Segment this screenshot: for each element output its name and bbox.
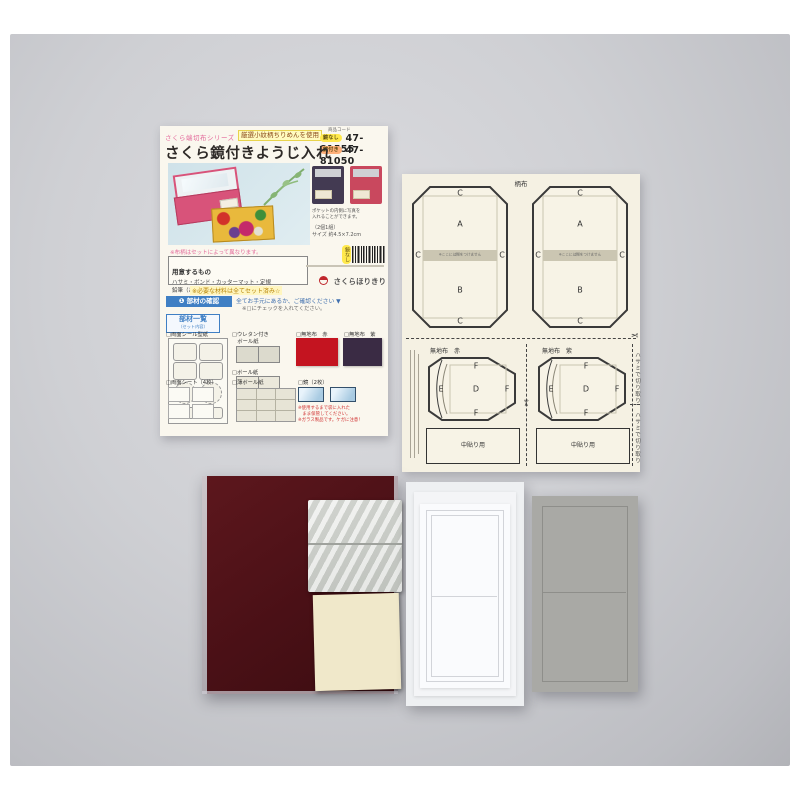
leaf-sprig	[260, 165, 308, 207]
tools-line: ハサミ・ボンド・カッターマット・定規	[172, 278, 304, 286]
product-title: さくら鏡付きようじ入れ	[165, 142, 331, 163]
subtitle-highlight: 厳選小紋柄ちりめんを使用	[238, 130, 322, 141]
cut-instruction-vertical: ハサミで切り取り	[633, 412, 641, 464]
part-label-double-sided-sheets: □両面シート（4枚）	[166, 378, 217, 386]
letter-c-top: C	[457, 189, 463, 198]
letter-c-left: C	[535, 251, 541, 260]
case-clasp	[353, 169, 379, 177]
sheet-diagram	[168, 387, 190, 402]
product-photo	[168, 163, 310, 245]
mirror-warning: ※使用するまで袋に入れた	[298, 406, 350, 412]
pattern-sheet: 柄布 C A C ※ここには糊をつけません C B C C A C	[402, 174, 640, 472]
part-label-cardboard: □ボール紙	[232, 368, 258, 376]
octagon-template-abc: C A C ※ここには糊をつけません C B C	[410, 184, 510, 330]
part-label-red-fabric: □無地布 赤	[296, 330, 328, 338]
part-label-purple-fabric: □無地布 紫	[344, 330, 376, 338]
purple-fabric-swatch	[343, 338, 382, 366]
die-cut-white-board	[420, 504, 510, 688]
case-clasp	[315, 169, 341, 177]
letter-f-bottom: F	[584, 409, 589, 418]
thin-board-diagram	[236, 388, 296, 422]
mirror-diagram	[298, 387, 324, 402]
brand-logo-icon	[319, 276, 328, 285]
middle-paste-rect: 中貼り用	[536, 428, 630, 464]
series-name: さくら端切布シリーズ	[165, 132, 235, 142]
wrapped-mirrors	[308, 500, 402, 592]
middle-paste-label: 中貼り用	[571, 442, 595, 449]
part-label-thin-board: □薄ボール紙	[232, 378, 264, 386]
fine-print-column	[410, 350, 411, 458]
die-shape	[199, 343, 223, 361]
sheet-diagram	[192, 387, 214, 402]
variant-case-red	[350, 166, 382, 204]
set-count-note: （2個1組）	[312, 224, 338, 231]
score-rect	[542, 506, 628, 682]
octagon-template-def: F E D F F	[426, 356, 518, 422]
set-complete-note: ※必要な材料は全てセット済み☆	[190, 286, 282, 295]
sheet-diagram	[192, 404, 214, 419]
mirror-none-badge: 鏡なし	[320, 134, 342, 142]
score-line	[542, 592, 626, 593]
fine-print-column	[414, 350, 415, 458]
letter-b: B	[457, 286, 463, 295]
letter-f-bottom: F	[474, 409, 479, 418]
tools-needed-box: 用意するもの ハサミ・ボンド・カッターマット・定規 鉛筆（あると便利）など	[168, 256, 308, 285]
variant-case-purple	[312, 166, 344, 204]
letter-e: E	[548, 385, 553, 394]
plain-fabric-red-label: 無地布 赤	[430, 346, 460, 355]
studio-backdrop: さくら端切布シリーズ 厳選小紋柄ちりめんを使用 商品コード 鏡なし 47-815…	[10, 34, 790, 766]
tools-label: 用意するもの	[172, 268, 211, 276]
step1-header: ❶ 部材の確認	[166, 296, 232, 307]
letter-b: B	[577, 286, 583, 295]
no-glue-strip-note: ※ここには糊をつけません	[559, 253, 601, 258]
letter-a: A	[457, 220, 462, 229]
mirror-diagram	[330, 387, 356, 402]
letter-e: E	[438, 385, 443, 394]
letter-f-right: F	[505, 385, 510, 394]
cut-instruction-vertical: ハサミで切り取り	[633, 352, 641, 404]
letter-c-right: C	[619, 251, 625, 260]
scissors-icon: ✂	[631, 329, 639, 339]
part-label-urethane-board2: ボール紙	[232, 337, 259, 345]
barcode-variant-badge: 鏡なし	[342, 245, 351, 264]
fine-print-column	[418, 354, 419, 454]
variant-note: 入れることができます。	[312, 214, 360, 220]
brand-row: さくらほりきり	[300, 269, 386, 288]
white-board-stack	[406, 482, 524, 706]
letter-f-right: F	[615, 385, 620, 394]
parts-list-subtitle: （セット内容）	[167, 324, 219, 329]
score-line	[237, 410, 295, 411]
part-label-seal-template: □両面シール型紙	[166, 330, 208, 338]
score-line	[237, 399, 295, 400]
middle-paste-rect: 中貼り用	[426, 428, 520, 464]
letter-d: D	[583, 385, 589, 394]
cream-paper-card	[313, 593, 401, 691]
plastic-bag-edge	[202, 691, 398, 694]
sheet-diagram	[168, 404, 190, 419]
barcode	[352, 246, 386, 263]
letter-c-left: C	[415, 251, 421, 260]
score-line	[275, 389, 276, 421]
letter-a: A	[577, 220, 582, 229]
company-info-line	[306, 265, 384, 267]
urethane-board-diagram	[236, 346, 280, 363]
letter-d: D	[473, 385, 479, 394]
red-fabric-swatch	[296, 338, 338, 366]
size-note: サイズ 約4.5×7.2cm	[312, 231, 361, 238]
plastic-bag-edge	[202, 476, 207, 694]
case-mirror	[181, 173, 228, 192]
case-label-strip	[353, 190, 370, 199]
letter-c-bottom: C	[577, 317, 583, 326]
octagon-template-abc: C A C ※ここには糊をつけません C B C	[530, 184, 630, 330]
fabric-variation-note: ※布柄はセットによって異なります。	[170, 248, 262, 256]
floral-case-photo	[211, 205, 275, 242]
no-glue-strip-note: ※ここには糊をつけません	[439, 253, 481, 258]
case-label-strip	[315, 190, 332, 199]
barcode-block: 鏡なし	[342, 245, 386, 265]
part-label-mirrors: □鏡（2枚）	[298, 378, 328, 386]
letter-f-top: F	[584, 362, 589, 371]
letter-c-right: C	[499, 251, 505, 260]
die-shape	[173, 343, 197, 361]
brand-name: さくらほりきり	[334, 277, 387, 286]
score-line	[431, 596, 497, 597]
score-line	[256, 389, 257, 421]
instruction-sheet: さくら端切布シリーズ 厳選小紋柄ちりめんを使用 商品コード 鏡なし 47-815…	[160, 126, 388, 436]
octagon-template-def: F E D F F	[536, 356, 628, 422]
plain-fabric-purple-label: 無地布 紫	[542, 346, 572, 355]
check-instruction: ※□にチェックを入れてください。	[242, 304, 325, 312]
letter-f-top: F	[474, 362, 479, 371]
mirror-split-line	[308, 543, 402, 545]
cut-line-horizontal	[630, 404, 640, 405]
gray-chipboard	[532, 496, 638, 692]
middle-paste-label: 中貼り用	[461, 442, 485, 449]
mirror-warning: まま保管してください。	[298, 412, 350, 418]
maroon-fabric-pack	[202, 476, 398, 694]
letter-c-top: C	[577, 189, 583, 198]
parts-list-title: 部材一覧	[167, 315, 219, 324]
scissors-icon: ✂	[520, 399, 530, 407]
mirror-warning: ※ガラス製品です。ケガに注意！	[298, 418, 363, 424]
cut-line-horizontal	[406, 338, 636, 339]
letter-c-bottom: C	[457, 317, 463, 326]
